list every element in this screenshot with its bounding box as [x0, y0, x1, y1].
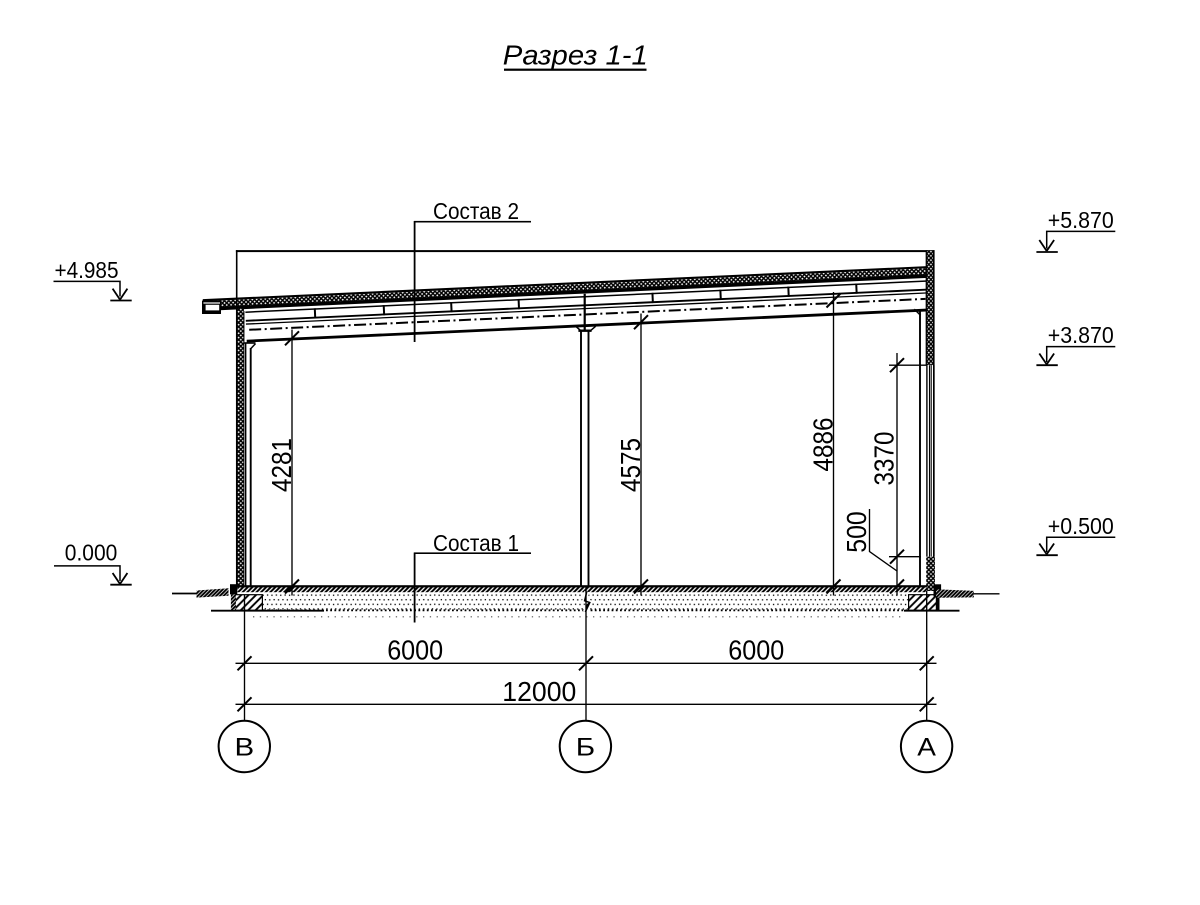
svg-text:+4.985: +4.985: [55, 257, 119, 283]
svg-text:А: А: [917, 733, 936, 761]
svg-text:4281: 4281: [266, 438, 297, 492]
svg-text:Состав 2: Состав 2: [433, 198, 519, 224]
svg-text:0.000: 0.000: [65, 539, 118, 565]
svg-text:6000: 6000: [728, 634, 784, 665]
svg-text:+3.870: +3.870: [1048, 322, 1114, 348]
svg-text:Б: Б: [576, 733, 595, 761]
svg-text:+5.870: +5.870: [1048, 207, 1114, 233]
svg-text:12000: 12000: [502, 676, 576, 707]
svg-text:Состав 1: Состав 1: [433, 530, 519, 556]
svg-text:6000: 6000: [387, 634, 443, 665]
svg-text:500: 500: [841, 511, 872, 553]
svg-text:Разрез 1-1: Разрез 1-1: [503, 39, 648, 70]
svg-text:В: В: [234, 733, 254, 761]
svg-text:4886: 4886: [808, 418, 839, 472]
svg-text:4575: 4575: [615, 438, 646, 492]
svg-text:3370: 3370: [869, 432, 900, 486]
svg-text:+0.500: +0.500: [1048, 513, 1114, 539]
